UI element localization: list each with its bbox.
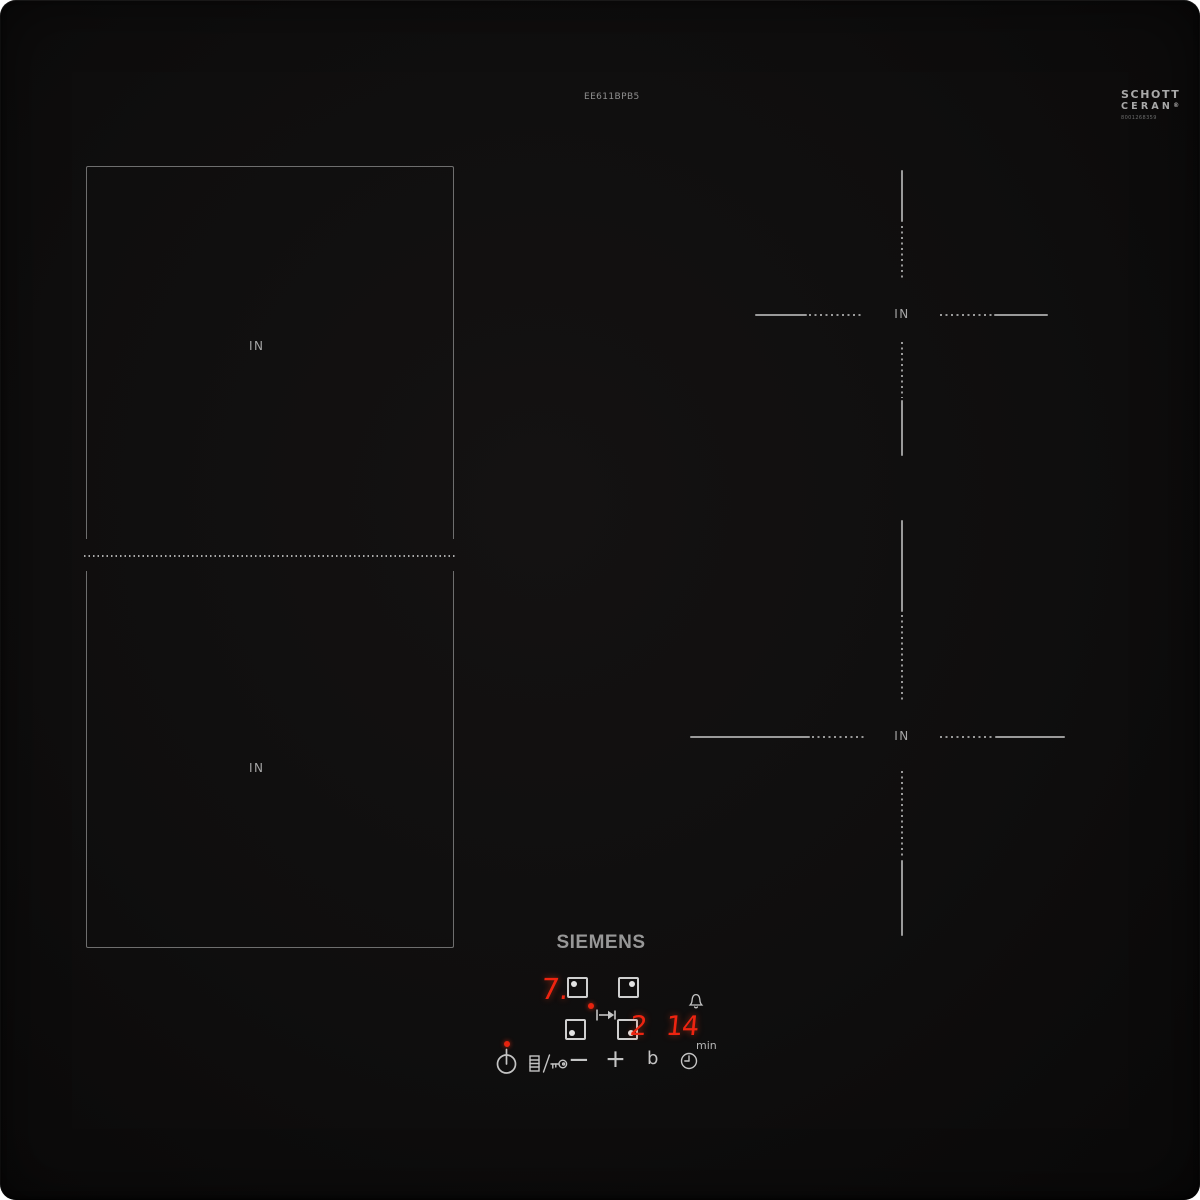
- zone-select-back-right-button[interactable]: [618, 977, 639, 998]
- minus-button[interactable]: −: [568, 1047, 590, 1073]
- zone-select-front-left-button[interactable]: [565, 1019, 586, 1040]
- zone-marker-dotted-line: [809, 314, 863, 316]
- zone-right-back-label: IN: [886, 307, 918, 321]
- zone-marker-line: [755, 314, 807, 316]
- timer-clock-button[interactable]: [680, 1052, 698, 1070]
- zone-left-front-label: IN: [249, 761, 265, 775]
- zone-marker-line: [901, 520, 903, 612]
- zone-marker-dotted-line: [940, 314, 992, 316]
- bell-icon: [687, 992, 705, 1010]
- glass-batch-code: 8001268359: [1121, 116, 1181, 121]
- product-photo: EE611BPB5 SCHOTT CERAN® 8001268359 IN IN…: [0, 0, 1200, 1200]
- schott-logo-line1: SCHOTT: [1121, 89, 1181, 101]
- zone-marker-line: [690, 736, 810, 738]
- zone-marker-dotted-line: [812, 736, 865, 738]
- zone-marker-line: [901, 400, 903, 456]
- power-level-display: 7.: [539, 975, 570, 1004]
- combizone-divider-dotted-line: [84, 555, 456, 557]
- zone-right-front-label: IN: [886, 729, 918, 743]
- zone-marker-line: [901, 860, 903, 936]
- timer-zone-indicator-dot: [588, 1003, 594, 1009]
- zone-marker-line: [994, 314, 1048, 316]
- power-button[interactable]: [495, 1047, 518, 1075]
- bridge-arrow-icon: [595, 1007, 617, 1023]
- boost-button[interactable]: b: [647, 1050, 658, 1068]
- schott-ceran-logo: SCHOTT CERAN® 8001268359: [1121, 89, 1181, 121]
- zone-position-dot: [569, 1030, 575, 1036]
- plus-button[interactable]: +: [605, 1046, 626, 1071]
- timer-unit-label: min: [696, 1039, 717, 1052]
- induction-hob-surface: EE611BPB5 SCHOTT CERAN® 8001268359 IN IN…: [0, 0, 1200, 1200]
- siemens-logo: SIEMENS: [555, 932, 647, 954]
- zone-position-dot: [571, 981, 577, 987]
- model-number: EE611BPB5: [584, 92, 640, 102]
- cooking-zone-left-front: IN: [86, 571, 454, 948]
- zone-marker-dotted-line: [901, 226, 903, 280]
- zone-select-back-left-button[interactable]: [567, 977, 588, 998]
- timer-digit: 4: [681, 1013, 701, 1040]
- zone-marker-line: [901, 170, 903, 222]
- zone-marker-dotted-line: [901, 615, 903, 703]
- zone-position-dot: [629, 981, 635, 987]
- zone-marker-dotted-line: [901, 771, 903, 858]
- cleaning-lock-key-button[interactable]: [528, 1053, 570, 1074]
- zone-marker-dotted-line: [901, 342, 903, 398]
- zone-left-back-label: IN: [249, 339, 265, 353]
- timer-digit: 2: [629, 1013, 649, 1040]
- cooking-zone-left-back: IN: [86, 166, 454, 539]
- schott-logo-line2: CERAN®: [1121, 102, 1181, 112]
- registered-mark: ®: [1173, 102, 1179, 109]
- zone-marker-line: [995, 736, 1065, 738]
- zone-marker-dotted-line: [940, 736, 993, 738]
